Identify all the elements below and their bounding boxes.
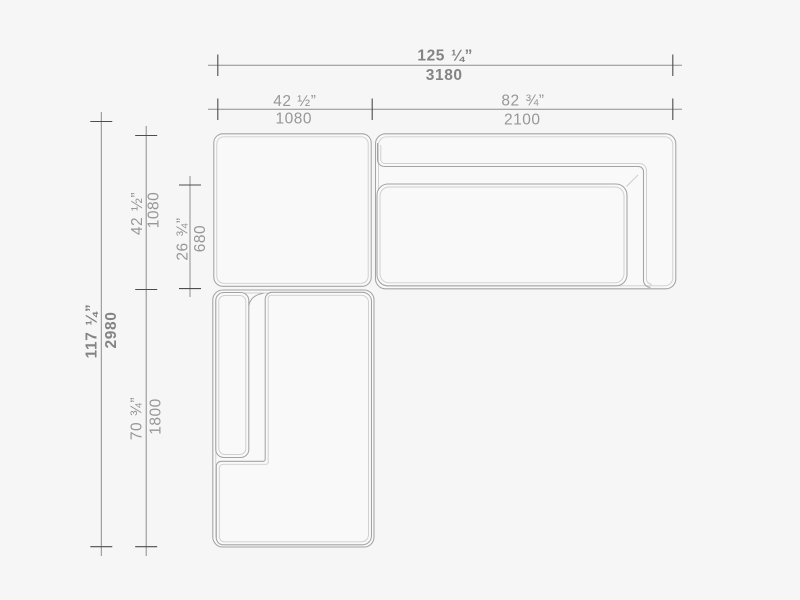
svg-text:1080: 1080 [146, 192, 163, 228]
svg-text:1800: 1800 [148, 398, 165, 434]
svg-text:125 ¼”: 125 ¼” [417, 48, 473, 65]
svg-text:117 ¼”: 117 ¼” [84, 304, 101, 359]
svg-text:1080: 1080 [276, 111, 312, 128]
svg-text:70 ¾”: 70 ¾” [128, 397, 145, 440]
svg-text:26 ¾”: 26 ¾” [174, 217, 191, 260]
svg-text:42 ½”: 42 ½” [129, 192, 146, 235]
svg-text:680: 680 [192, 225, 209, 252]
svg-text:3180: 3180 [426, 67, 463, 84]
svg-text:82 ¾”: 82 ¾” [501, 93, 544, 110]
svg-text:2980: 2980 [103, 312, 120, 349]
svg-text:2100: 2100 [504, 111, 540, 128]
svg-text:42 ½”: 42 ½” [273, 93, 316, 110]
